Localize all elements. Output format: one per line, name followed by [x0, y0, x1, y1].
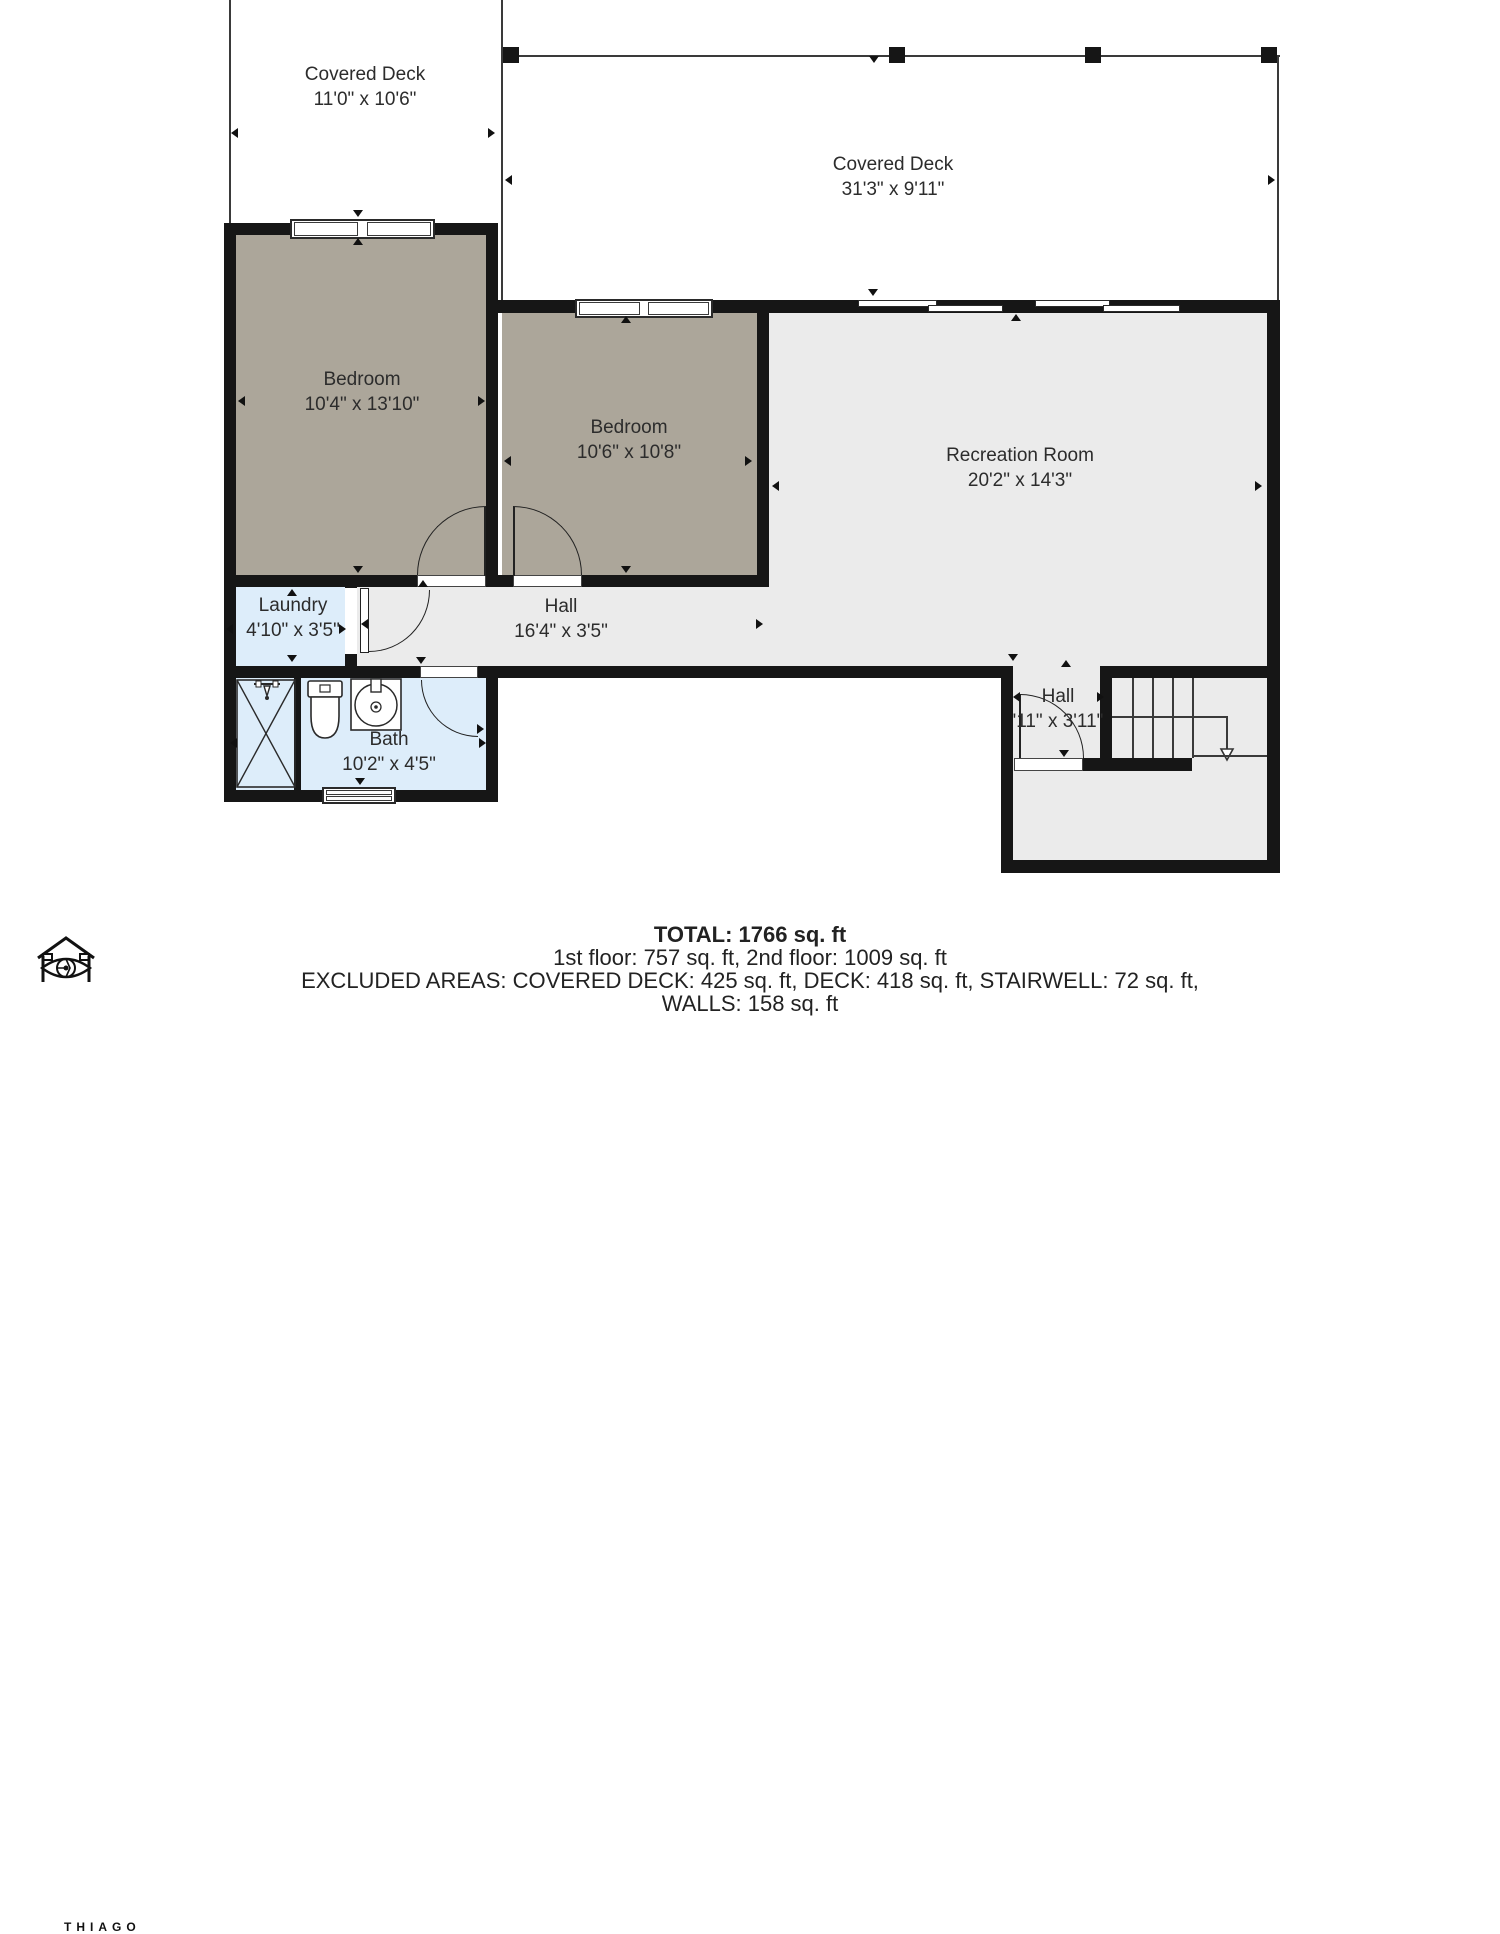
deck-right-edge: [1277, 55, 1279, 301]
measure-arrow: [231, 128, 238, 138]
room-name: Covered Deck: [833, 152, 953, 177]
wall-segment: [757, 302, 769, 587]
measure-arrow: [353, 566, 363, 573]
room-dims: 10'4" x 13'10": [305, 392, 420, 417]
room-name: Covered Deck: [305, 62, 425, 87]
stairwell-floor: [1112, 678, 1267, 758]
window-pane: [648, 302, 709, 315]
measure-arrow: [418, 580, 428, 587]
recreation-window-pane: [858, 300, 937, 307]
stair-tread: [1192, 678, 1194, 758]
room-label-hall-2: Hall '11" x 3'11": [1013, 684, 1104, 734]
room-label-bedroom-2: Bedroom 10'6" x 10'8": [577, 415, 681, 465]
wall-segment: [224, 223, 236, 802]
measure-arrow: [230, 738, 237, 748]
measure-arrow: [353, 238, 363, 245]
stair-run-line: [1226, 716, 1228, 750]
room-dims: 11'0" x 10'6": [305, 87, 425, 112]
deck-post: [503, 47, 519, 63]
window-pane: [294, 222, 358, 236]
room-name: Bedroom: [305, 367, 420, 392]
room-label-covered-deck-top: Covered Deck 31'3" x 9'11": [833, 152, 953, 202]
measure-arrow: [226, 624, 233, 634]
measure-arrow: [355, 778, 365, 785]
room-label-recreation-room: Recreation Room 20'2" x 14'3": [946, 443, 1094, 493]
room-label-bath: Bath 10'2" x 4'5": [342, 727, 436, 777]
wall-segment: [486, 223, 498, 587]
lower-room-floor: [1013, 758, 1267, 860]
measure-arrow: [1268, 175, 1275, 185]
room-label-covered-deck-left: Covered Deck 11'0" x 10'6": [305, 62, 425, 112]
measure-arrow: [869, 56, 879, 63]
room-name: Hall: [1013, 684, 1104, 709]
measure-arrow: [745, 456, 752, 466]
measure-arrow: [1059, 750, 1069, 757]
room-name: Laundry: [246, 593, 340, 618]
wall-segment: [1083, 758, 1192, 771]
measure-arrow: [361, 619, 368, 629]
measure-arrow: [238, 396, 245, 406]
stair-tread: [1132, 678, 1134, 758]
room-name: Bath: [342, 727, 436, 752]
measure-arrow: [621, 566, 631, 573]
footer-excluded-areas-2: WALLS: 158 sq. ft: [0, 992, 1500, 1015]
window-pane: [579, 302, 640, 315]
measure-arrow: [488, 128, 495, 138]
measure-arrow: [621, 316, 631, 323]
wall-segment: [1100, 666, 1280, 678]
wall-segment: [1001, 666, 1013, 873]
room-label-laundry: Laundry 4'10" x 3'5": [246, 593, 340, 643]
measure-arrow: [756, 619, 763, 629]
room-name: Hall: [514, 594, 608, 619]
room-name: Bedroom: [577, 415, 681, 440]
house-eye-logo-icon: [30, 936, 102, 984]
stair-run-line: [1112, 716, 1228, 718]
measure-arrow: [416, 657, 426, 664]
room-dims: '11" x 3'11": [1013, 709, 1104, 734]
measure-arrow: [1061, 660, 1071, 667]
measure-arrow: [478, 396, 485, 406]
measure-arrow: [1011, 314, 1021, 321]
measure-arrow: [339, 624, 346, 634]
hall-2-door-threshold: [1014, 758, 1083, 771]
measure-arrow: [1255, 481, 1262, 491]
bedroom-1-door-leaf: [484, 507, 486, 576]
window-pane: [326, 790, 392, 795]
measure-arrow: [477, 724, 484, 734]
floor-plan: Covered Deck 11'0" x 10'6" Covered Deck …: [0, 0, 1500, 1000]
room-dims: 10'6" x 10'8": [577, 440, 681, 465]
window-pane: [326, 796, 392, 801]
room-label-hall: Hall 16'4" x 3'5": [514, 594, 608, 644]
sink-icon: [350, 678, 402, 732]
measure-arrow: [479, 738, 486, 748]
measure-arrow: [353, 210, 363, 217]
recreation-window-pane: [928, 305, 1003, 312]
measure-arrow: [504, 456, 511, 466]
bath-door-threshold: [420, 666, 478, 678]
footer-total: TOTAL: 1766 sq. ft: [0, 923, 1500, 946]
thiago-logo: THIAGO: [30, 936, 140, 989]
wall-segment: [224, 575, 769, 587]
room-label-bedroom-1: Bedroom 10'4" x 13'10": [305, 367, 420, 417]
toilet-icon: [305, 680, 345, 742]
bedroom-2-door-leaf: [513, 507, 515, 576]
measure-arrow: [505, 175, 512, 185]
stair-tread: [1152, 678, 1154, 758]
deck-post: [889, 47, 905, 63]
stair-tread: [1172, 678, 1174, 758]
deck-post: [1085, 47, 1101, 63]
footer-excluded-areas: EXCLUDED AREAS: COVERED DECK: 425 sq. ft…: [0, 969, 1500, 992]
room-dims: 16'4" x 3'5": [514, 619, 608, 644]
measure-arrow: [868, 289, 878, 296]
room-dims: 20'2" x 14'3": [946, 468, 1094, 493]
measure-arrow: [287, 655, 297, 662]
window-pane: [367, 222, 431, 236]
room-dims: 10'2" x 4'5": [342, 752, 436, 777]
deck-post: [1261, 47, 1277, 63]
deck-shared-edge: [501, 0, 503, 301]
bedroom-2-door-threshold: [513, 575, 582, 587]
room-dims: 4'10" x 3'5": [246, 618, 340, 643]
wall-segment: [224, 666, 1013, 678]
room-dims: 31'3" x 9'11": [833, 177, 953, 202]
wall-segment: [486, 678, 498, 802]
brand-text: THIAGO: [64, 1920, 141, 1934]
wall-segment: [1001, 860, 1280, 873]
wall-segment: [1267, 300, 1280, 873]
recreation-window-pane: [1035, 300, 1110, 307]
shower-icon: [236, 678, 296, 790]
measure-arrow: [1008, 654, 1018, 661]
room-name: Recreation Room: [946, 443, 1094, 468]
measure-arrow: [772, 481, 779, 491]
laundry-door-opening: [345, 588, 357, 654]
footer-floors: 1st floor: 757 sq. ft, 2nd floor: 1009 s…: [0, 946, 1500, 969]
recreation-window-pane: [1103, 305, 1180, 312]
deck-left-edge: [229, 0, 231, 224]
stair-landing-edge: [1192, 755, 1267, 757]
